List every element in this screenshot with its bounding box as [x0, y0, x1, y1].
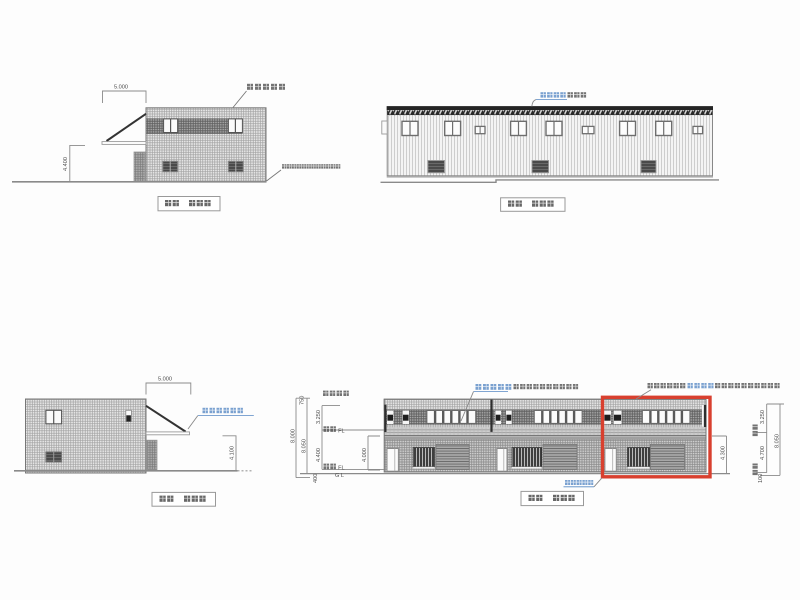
- svg-text:4.000: 4.000: [362, 448, 368, 462]
- svg-text:750: 750: [300, 396, 306, 405]
- svg-text:FL: FL: [338, 428, 345, 434]
- svg-text:100: 100: [758, 474, 764, 483]
- svg-text:3.250: 3.250: [760, 410, 766, 424]
- svg-text:G L: G L: [335, 473, 344, 479]
- svg-text:4.300: 4.300: [721, 446, 727, 460]
- svg-text:4.100: 4.100: [230, 446, 236, 460]
- svg-text:5.000: 5.000: [114, 85, 128, 91]
- svg-text:400: 400: [313, 474, 319, 483]
- svg-text:FL: FL: [338, 466, 345, 472]
- svg-text:5.000: 5.000: [158, 377, 172, 383]
- svg-text:4.400: 4.400: [316, 448, 322, 462]
- svg-text:4.400: 4.400: [63, 157, 69, 171]
- svg-text:4.700: 4.700: [760, 446, 766, 460]
- svg-text:3.250: 3.250: [316, 410, 322, 424]
- svg-text:8.050: 8.050: [775, 434, 781, 448]
- svg-text:8.000: 8.000: [291, 429, 297, 443]
- svg-text:8.050: 8.050: [302, 439, 308, 453]
